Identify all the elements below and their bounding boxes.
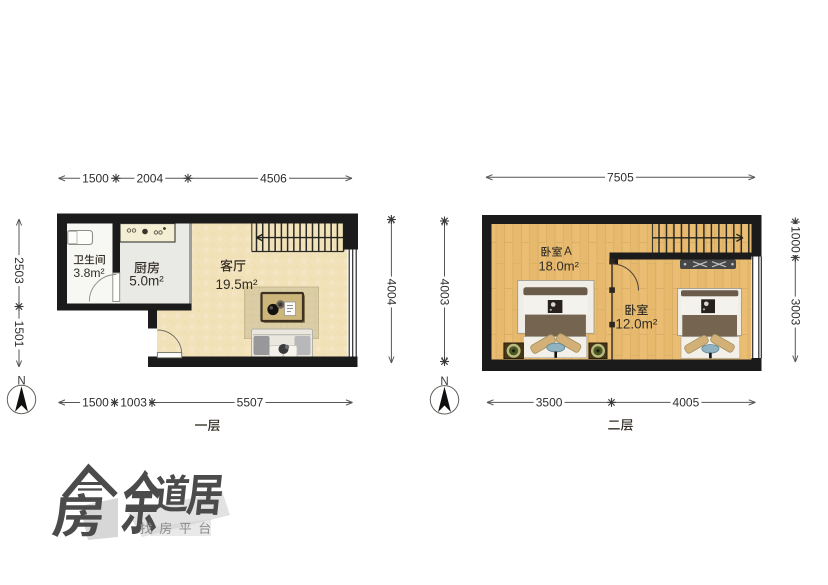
svg-text:19.5m²: 19.5m² xyxy=(215,277,258,292)
svg-text:1500: 1500 xyxy=(82,396,109,410)
svg-text:N: N xyxy=(440,376,448,388)
svg-text:3003: 3003 xyxy=(788,299,802,326)
svg-text:5.0m²: 5.0m² xyxy=(129,273,164,288)
svg-text:4506: 4506 xyxy=(260,171,287,185)
svg-text:2503: 2503 xyxy=(12,257,26,284)
svg-text:18.0m²: 18.0m² xyxy=(538,258,579,273)
svg-text:4003: 4003 xyxy=(438,279,452,306)
svg-text:1501: 1501 xyxy=(12,321,26,348)
svg-text:N: N xyxy=(17,376,25,388)
svg-text:7505: 7505 xyxy=(607,170,634,184)
svg-text:3500: 3500 xyxy=(536,395,563,409)
svg-text:A: A xyxy=(564,246,572,258)
svg-text:12.0m²: 12.0m² xyxy=(615,317,658,332)
svg-text:1500: 1500 xyxy=(82,171,109,185)
svg-text:1000: 1000 xyxy=(788,226,802,253)
svg-text:1003: 1003 xyxy=(120,396,147,410)
svg-text:4004: 4004 xyxy=(384,279,398,306)
svg-text:5507: 5507 xyxy=(237,396,264,410)
svg-text:3.8m²: 3.8m² xyxy=(73,266,104,280)
svg-text:2004: 2004 xyxy=(136,171,163,185)
svg-text:4005: 4005 xyxy=(673,395,700,409)
